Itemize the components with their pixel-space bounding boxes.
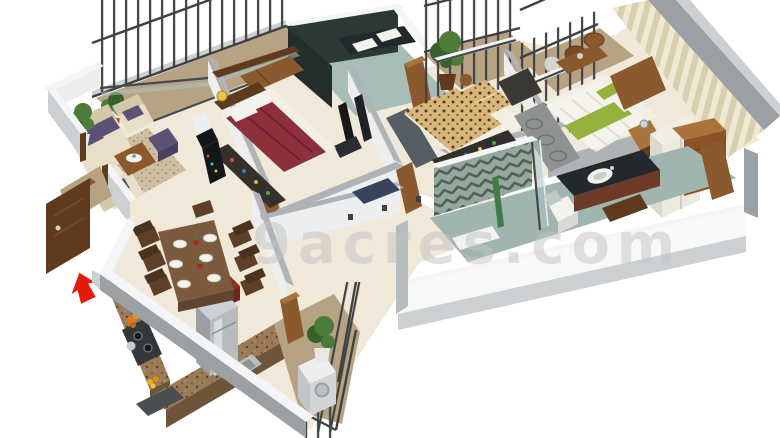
lamp-icon: [577, 53, 583, 59]
washer-door-icon: [316, 384, 329, 397]
watermark: 9acres.com: [252, 212, 682, 277]
column-stub: [382, 205, 387, 211]
faucet-icon: [610, 166, 614, 170]
basket: [460, 74, 472, 86]
table-lamp-icon: [217, 91, 227, 101]
main-door: [46, 178, 96, 274]
kettle-icon: [127, 342, 136, 351]
door-jamb: [80, 132, 86, 162]
floor-plan-canvas: 9acres.com: [0, 0, 780, 438]
lamp-icon: [640, 120, 648, 128]
door-handle-icon: [56, 226, 61, 231]
floor-plan-render: 9acres.com: [0, 0, 780, 438]
column-stub: [416, 196, 421, 202]
